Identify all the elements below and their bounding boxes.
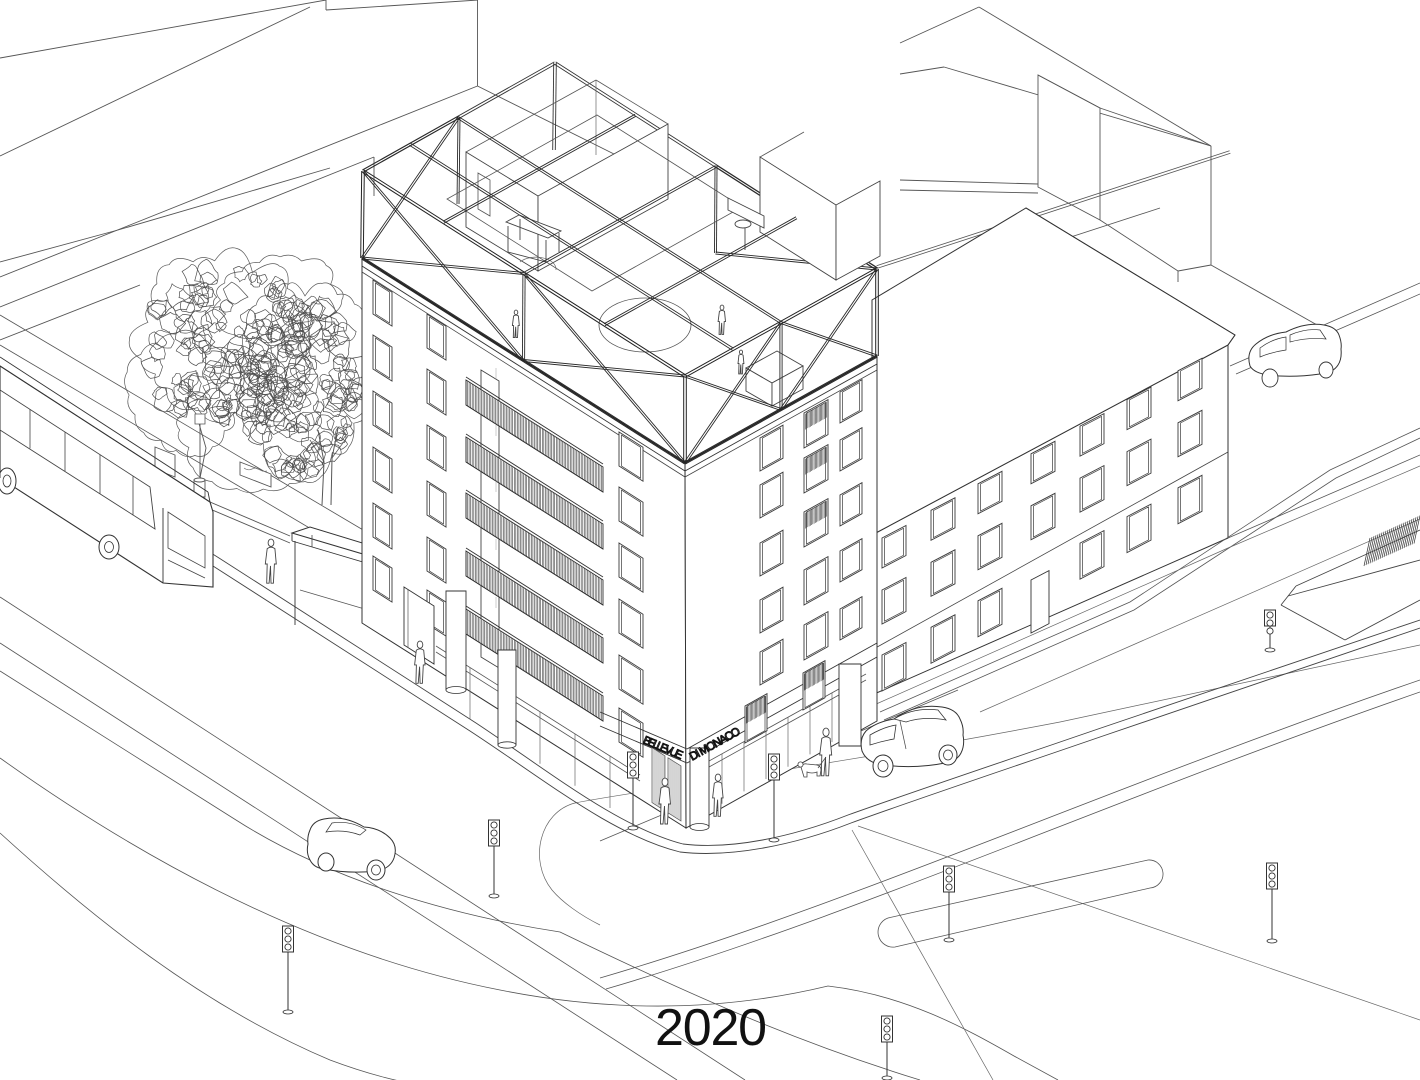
svg-text:2020: 2020 [655,999,766,1057]
